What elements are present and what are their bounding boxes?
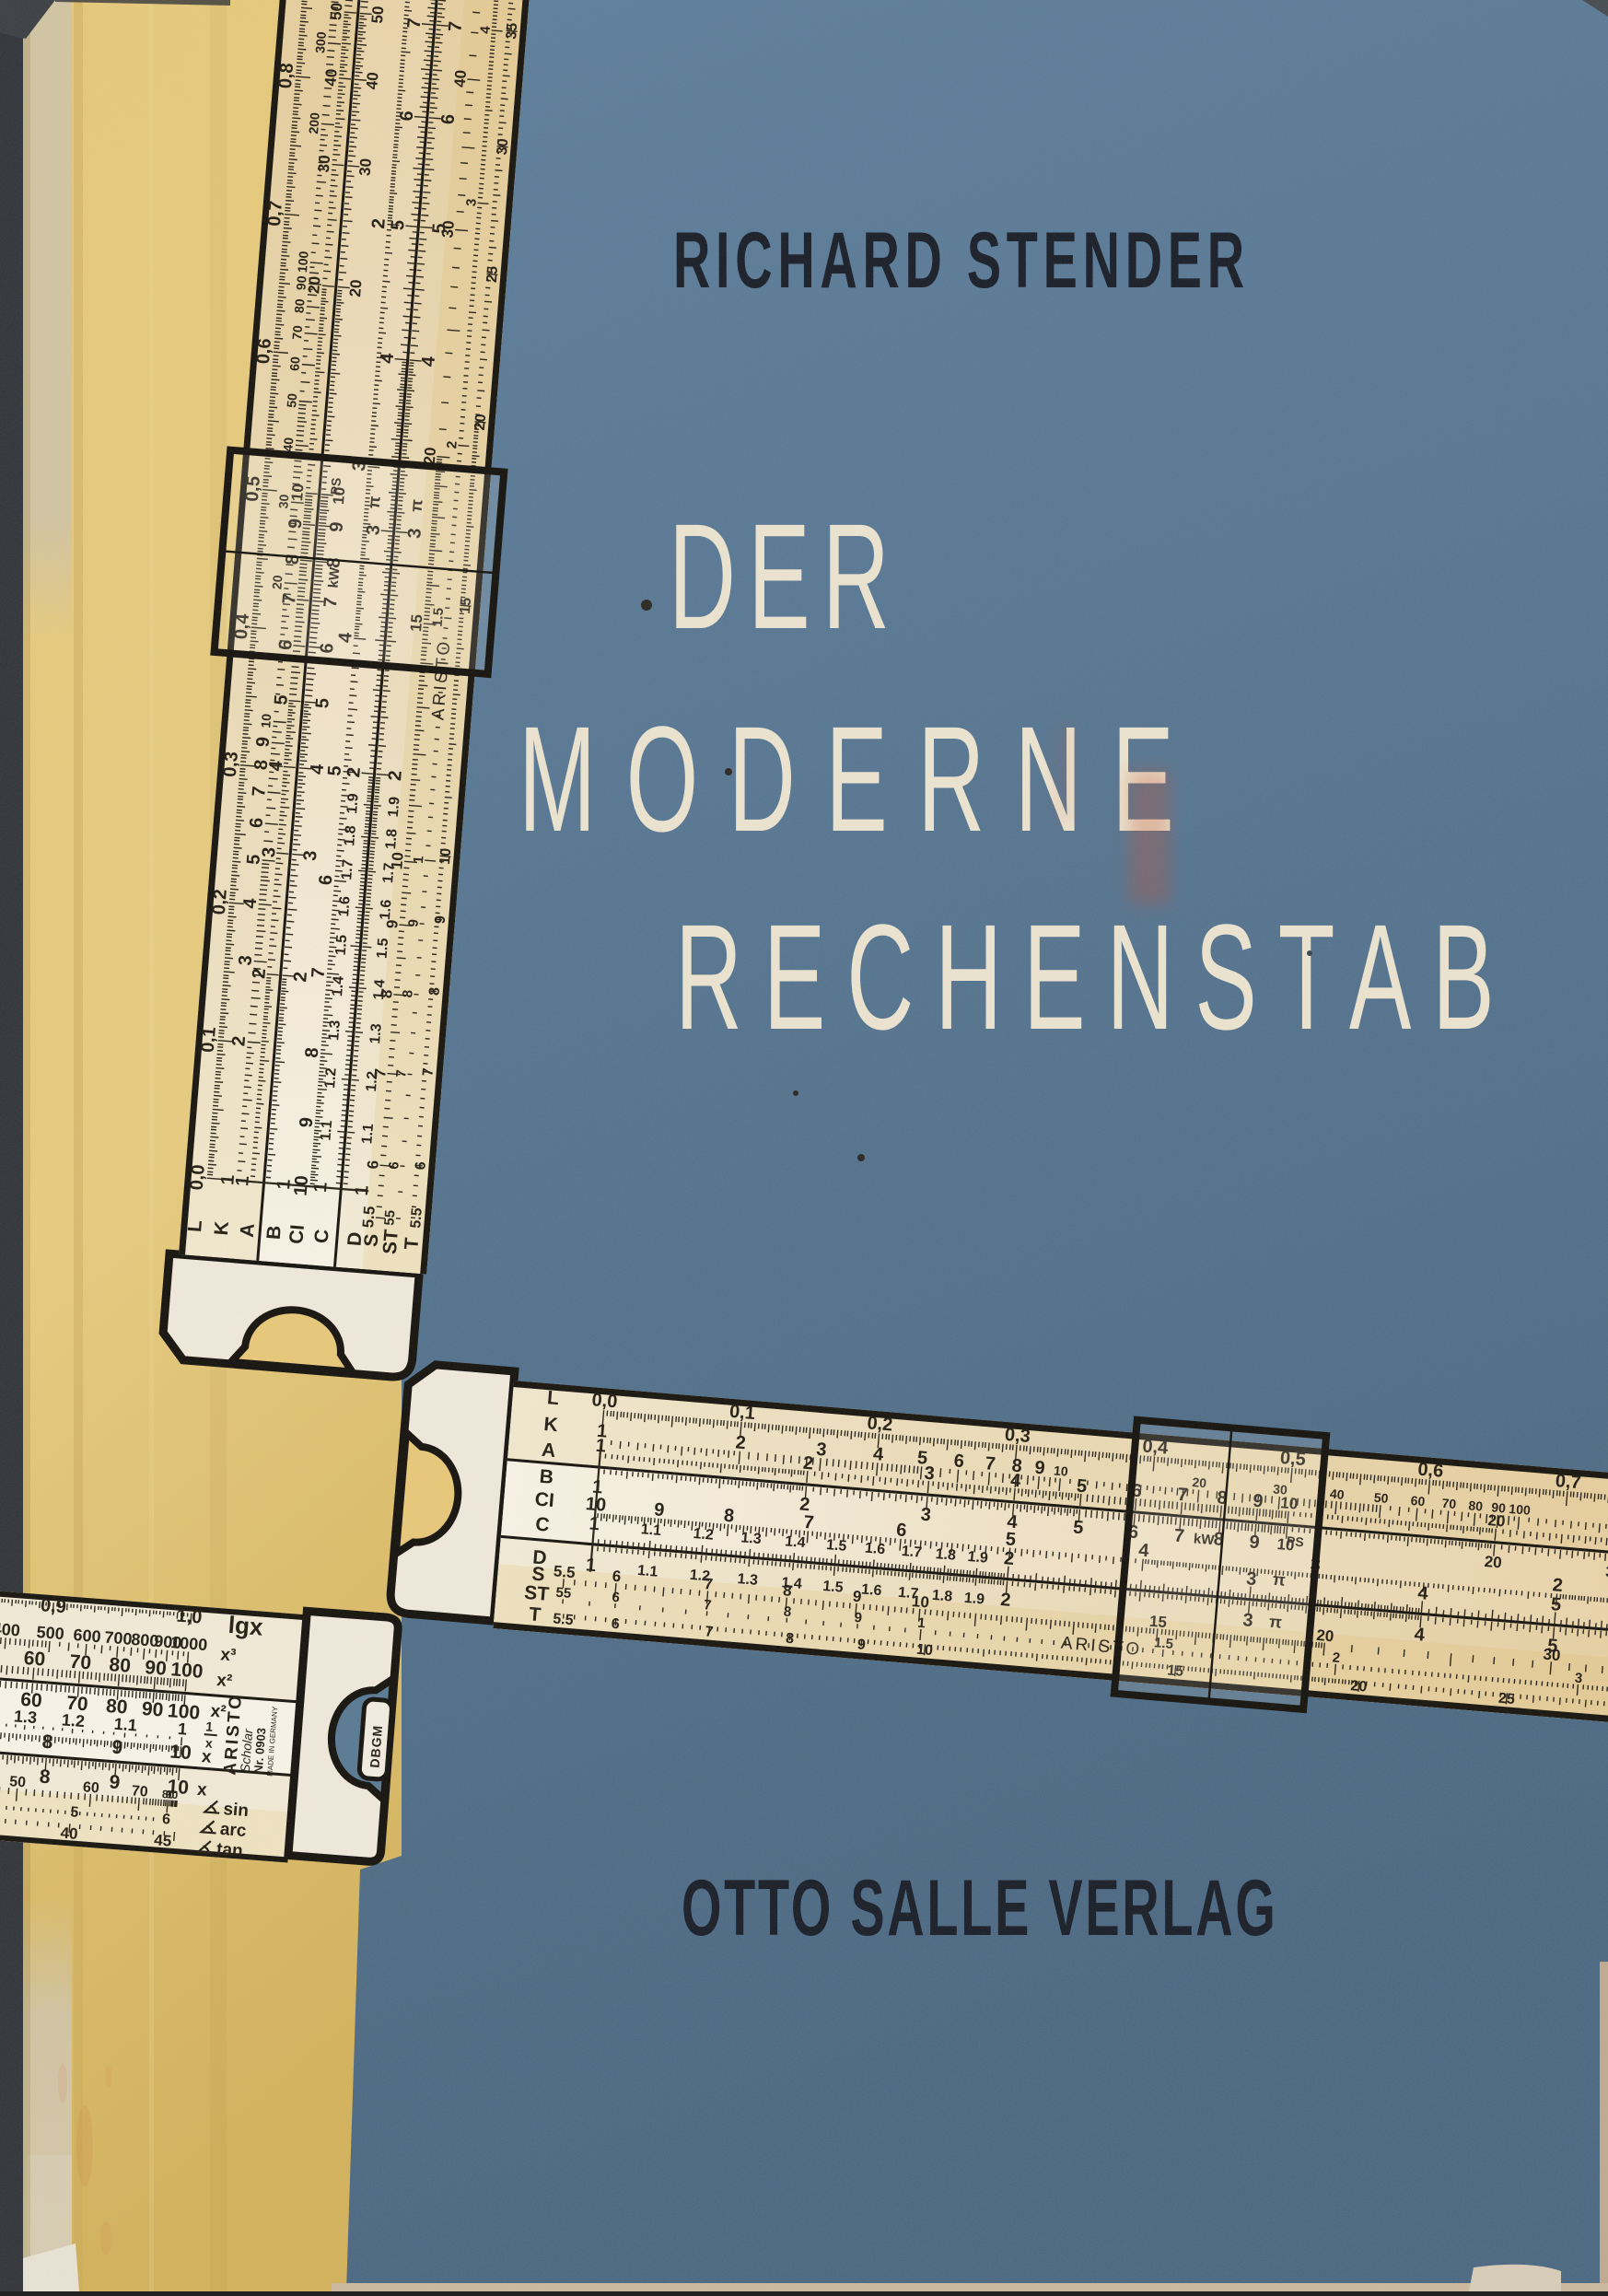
svg-text:x²: x² <box>216 1671 232 1691</box>
svg-text:60: 60 <box>286 355 302 371</box>
svg-text:0,6: 0,6 <box>1417 1460 1445 1482</box>
svg-text:8: 8 <box>783 1603 792 1620</box>
svg-text:1.9: 1.9 <box>963 1591 985 1608</box>
svg-text:T: T <box>401 1237 423 1251</box>
svg-text:CI: CI <box>534 1488 555 1511</box>
svg-text:7: 7 <box>371 1067 390 1078</box>
svg-text:6: 6 <box>437 113 459 125</box>
svg-text:7: 7 <box>309 967 330 979</box>
svg-text:2: 2 <box>802 1453 814 1474</box>
svg-text:0,7: 0,7 <box>264 200 286 227</box>
svg-text:25: 25 <box>484 265 501 283</box>
svg-text:DER: DER <box>669 492 890 660</box>
svg-text:RICHARD STENDER: RICHARD STENDER <box>673 216 1244 305</box>
svg-text:9: 9 <box>1034 1458 1046 1479</box>
svg-text:1.3: 1.3 <box>367 1023 385 1045</box>
svg-text:9: 9 <box>852 1588 862 1606</box>
svg-text:1.4: 1.4 <box>785 1533 807 1551</box>
svg-text:9: 9 <box>297 1116 318 1128</box>
svg-text:1.5: 1.5 <box>374 938 391 960</box>
svg-text:40: 40 <box>60 1824 78 1843</box>
svg-text:30: 30 <box>495 138 511 156</box>
svg-text:5: 5 <box>1550 1594 1562 1615</box>
svg-text:10: 10 <box>388 851 406 869</box>
svg-text:0,0: 0,0 <box>591 1390 619 1412</box>
svg-text:9: 9 <box>856 1637 866 1653</box>
svg-text:A: A <box>237 1222 259 1238</box>
svg-text:2: 2 <box>249 968 270 980</box>
svg-text:5: 5 <box>388 219 409 231</box>
svg-text:1.1: 1.1 <box>318 1120 335 1142</box>
svg-text:3: 3 <box>924 1463 936 1485</box>
svg-text:6: 6 <box>953 1451 965 1472</box>
svg-text:1.7: 1.7 <box>901 1544 923 1561</box>
svg-text:1.3: 1.3 <box>326 1020 344 1042</box>
svg-text:0,1: 0,1 <box>198 1026 220 1053</box>
svg-text:60: 60 <box>23 1648 46 1671</box>
svg-text:60: 60 <box>1410 1493 1426 1509</box>
svg-text:7: 7 <box>393 1069 410 1078</box>
svg-text:1.5: 1.5 <box>822 1579 845 1596</box>
svg-text:6: 6 <box>364 1160 382 1170</box>
svg-text:600: 600 <box>73 1626 101 1646</box>
svg-text:9: 9 <box>383 919 402 929</box>
svg-text:3: 3 <box>300 850 321 862</box>
svg-text:3: 3 <box>235 954 256 966</box>
svg-text:2: 2 <box>385 770 406 782</box>
svg-text:70: 70 <box>69 1651 92 1674</box>
svg-text:1,0: 1,0 <box>176 1606 203 1628</box>
svg-text:7: 7 <box>445 20 466 32</box>
svg-text:2: 2 <box>1003 1548 1015 1569</box>
svg-text:6: 6 <box>612 1568 622 1586</box>
svg-text:40: 40 <box>321 68 340 87</box>
svg-text:1.1: 1.1 <box>113 1715 137 1735</box>
svg-text:25: 25 <box>1497 1691 1515 1707</box>
svg-text:8: 8 <box>400 989 416 998</box>
svg-text:70: 70 <box>289 324 305 340</box>
svg-text:10: 10 <box>437 847 454 865</box>
svg-text:1.9: 1.9 <box>344 793 362 815</box>
svg-text:20: 20 <box>1350 1678 1368 1695</box>
svg-text:30: 30 <box>1605 1563 1608 1582</box>
svg-text:2: 2 <box>999 1590 1011 1611</box>
svg-text:1.6: 1.6 <box>864 1541 886 1558</box>
svg-text:0,2: 0,2 <box>209 889 231 915</box>
svg-text:70: 70 <box>1441 1496 1457 1511</box>
svg-text:RECHENSTAB: RECHENSTAB <box>675 892 1495 1061</box>
svg-text:ST: ST <box>379 1229 402 1255</box>
svg-text:55: 55 <box>555 1585 572 1602</box>
svg-text:80: 80 <box>1468 1498 1484 1513</box>
svg-text:K: K <box>211 1220 233 1236</box>
svg-text:6: 6 <box>161 1812 170 1828</box>
svg-text:35: 35 <box>504 22 520 40</box>
svg-text:30: 30 <box>1543 1646 1561 1665</box>
svg-text:1.8: 1.8 <box>383 828 401 850</box>
svg-text:1: 1 <box>917 1615 926 1632</box>
svg-text:5: 5 <box>70 1804 79 1821</box>
svg-text:1000: 1000 <box>170 1633 208 1654</box>
svg-text:6: 6 <box>413 1161 429 1171</box>
svg-text:6: 6 <box>611 1616 620 1633</box>
svg-text:L: L <box>184 1219 206 1233</box>
svg-text:5: 5 <box>1076 1476 1088 1498</box>
svg-text:20: 20 <box>1487 1511 1506 1531</box>
svg-text:1.3: 1.3 <box>740 1530 763 1547</box>
svg-text:5.5: 5.5 <box>553 1562 576 1581</box>
svg-text:1.7: 1.7 <box>339 859 356 881</box>
svg-text:2: 2 <box>228 1035 250 1047</box>
svg-text:OTTO SALLE VERLAG: OTTO SALLE VERLAG <box>682 1864 1276 1952</box>
svg-text:1.3: 1.3 <box>737 1571 759 1589</box>
svg-text:5: 5 <box>324 764 345 776</box>
svg-text:30: 30 <box>315 155 333 173</box>
svg-text:40: 40 <box>1329 1486 1345 1502</box>
svg-text:9: 9 <box>111 1737 123 1759</box>
svg-text:9: 9 <box>433 915 449 924</box>
svg-text:30: 30 <box>356 157 375 176</box>
svg-text:1.2: 1.2 <box>61 1710 85 1731</box>
svg-text:9: 9 <box>653 1499 665 1521</box>
svg-text:8: 8 <box>41 1731 54 1754</box>
svg-text:300: 300 <box>312 31 329 54</box>
svg-text:x: x <box>201 1747 213 1767</box>
svg-text:2: 2 <box>444 440 460 449</box>
svg-text:C: C <box>311 1229 333 1244</box>
svg-text:8: 8 <box>302 1046 323 1058</box>
svg-text:7: 7 <box>704 1575 714 1593</box>
svg-text:3: 3 <box>463 198 480 207</box>
svg-text:B: B <box>263 1225 285 1241</box>
svg-text:50: 50 <box>9 1774 27 1790</box>
svg-text:6: 6 <box>895 1520 907 1541</box>
svg-text:100: 100 <box>295 251 311 274</box>
svg-text:1.8: 1.8 <box>931 1588 953 1605</box>
svg-text:8: 8 <box>723 1506 735 1527</box>
svg-text:tan: tan <box>216 1840 243 1861</box>
svg-text:1.5: 1.5 <box>825 1537 847 1555</box>
svg-text:10: 10 <box>911 1592 929 1612</box>
svg-text:CI: CI <box>285 1224 309 1245</box>
svg-text:8: 8 <box>785 1631 794 1648</box>
svg-text:9: 9 <box>253 736 274 748</box>
svg-text:20: 20 <box>305 275 323 294</box>
svg-text:3: 3 <box>259 846 280 858</box>
svg-text:2: 2 <box>1332 1649 1341 1666</box>
svg-text:K: K <box>543 1414 559 1436</box>
svg-text:80: 80 <box>291 298 307 314</box>
svg-text:45: 45 <box>154 1831 172 1849</box>
svg-text:50: 50 <box>327 2 345 20</box>
svg-text:sin: sin <box>223 1800 250 1821</box>
svg-text:x: x <box>196 1780 208 1801</box>
svg-text:8: 8 <box>426 986 443 996</box>
svg-text:40: 40 <box>363 72 381 90</box>
svg-text:90: 90 <box>145 1657 168 1680</box>
svg-text:lgx: lgx <box>227 1611 264 1641</box>
svg-text:7: 7 <box>404 17 425 29</box>
svg-text:1.5: 1.5 <box>333 934 351 956</box>
svg-text:x³: x³ <box>220 1645 237 1665</box>
svg-text:700: 700 <box>104 1628 133 1649</box>
svg-text:50: 50 <box>368 6 387 24</box>
svg-text:0,0: 0,0 <box>187 1164 209 1191</box>
svg-text:0,8: 0,8 <box>275 63 297 89</box>
svg-text:30: 30 <box>438 220 457 239</box>
svg-text:5.5: 5.5 <box>359 1206 379 1229</box>
svg-text:9: 9 <box>854 1610 863 1626</box>
svg-text:90: 90 <box>141 1698 164 1721</box>
svg-text:0,6: 0,6 <box>253 338 275 365</box>
svg-text:20: 20 <box>1316 1626 1334 1646</box>
svg-text:6: 6 <box>397 110 418 122</box>
svg-text:0,7: 0,7 <box>1555 1471 1582 1493</box>
svg-text:1: 1 <box>177 1719 188 1739</box>
svg-text:10: 10 <box>915 1642 933 1659</box>
svg-text:2: 2 <box>735 1432 747 1453</box>
svg-text:7: 7 <box>703 1597 712 1614</box>
svg-text:C: C <box>534 1514 550 1536</box>
svg-text:1.4: 1.4 <box>330 975 347 997</box>
svg-text:20: 20 <box>346 279 365 297</box>
svg-text:0,2: 0,2 <box>867 1413 894 1435</box>
svg-text:50: 50 <box>1373 1490 1389 1506</box>
svg-text:ST: ST <box>523 1582 550 1605</box>
svg-text:arc: arc <box>219 1820 247 1841</box>
svg-text:70: 70 <box>131 1783 148 1800</box>
svg-text:5: 5 <box>1005 1529 1017 1550</box>
svg-text:3: 3 <box>815 1439 827 1461</box>
svg-text:1.8: 1.8 <box>342 825 359 847</box>
svg-text:5.5: 5.5 <box>553 1611 575 1628</box>
svg-text:40: 40 <box>280 437 296 452</box>
svg-text:90: 90 <box>165 1788 179 1801</box>
svg-text:5: 5 <box>271 694 292 706</box>
svg-text:1.9: 1.9 <box>967 1549 989 1567</box>
svg-text:1.8: 1.8 <box>935 1546 957 1564</box>
svg-text:1.1: 1.1 <box>359 1123 377 1145</box>
svg-text:7: 7 <box>249 786 270 798</box>
svg-text:100: 100 <box>170 1659 204 1683</box>
svg-text:20: 20 <box>472 414 489 431</box>
svg-text:55: 55 <box>381 1209 398 1226</box>
svg-text:8: 8 <box>782 1581 792 1600</box>
svg-text:1: 1 <box>205 1719 214 1734</box>
svg-text:5: 5 <box>312 697 333 709</box>
svg-text:1.6: 1.6 <box>378 899 395 921</box>
svg-text:2: 2 <box>344 766 365 778</box>
svg-text:9: 9 <box>109 1771 121 1793</box>
svg-text:1.1: 1.1 <box>636 1563 658 1580</box>
svg-text:0,9: 0,9 <box>40 1595 66 1617</box>
svg-text:500: 500 <box>36 1623 64 1643</box>
svg-text:20: 20 <box>1484 1553 1502 1572</box>
svg-text:1.2: 1.2 <box>322 1067 340 1090</box>
svg-text:7: 7 <box>985 1453 996 1474</box>
svg-text:5: 5 <box>1072 1517 1084 1538</box>
svg-text:6: 6 <box>246 817 267 829</box>
svg-text:10: 10 <box>258 713 274 728</box>
svg-text:5.5: 5.5 <box>408 1207 425 1230</box>
svg-text:10: 10 <box>169 1741 192 1764</box>
svg-text:9: 9 <box>405 918 422 927</box>
svg-text:100: 100 <box>1509 1501 1532 1518</box>
svg-text:6: 6 <box>316 874 337 886</box>
svg-text:2: 2 <box>1552 1575 1564 1596</box>
svg-text:6: 6 <box>612 1590 621 1606</box>
svg-text:1.2: 1.2 <box>693 1526 715 1544</box>
svg-text:0,3: 0,3 <box>1004 1425 1031 1447</box>
svg-text:0,1: 0,1 <box>728 1402 756 1424</box>
svg-text:7: 7 <box>420 1067 437 1077</box>
svg-text:B: B <box>539 1466 554 1488</box>
svg-text:40: 40 <box>451 69 470 87</box>
svg-text:7: 7 <box>705 1624 714 1640</box>
svg-text:400: 400 <box>0 1619 21 1639</box>
svg-text:200: 200 <box>306 111 322 134</box>
svg-text:3: 3 <box>1574 1671 1583 1687</box>
svg-text:A: A <box>541 1439 556 1462</box>
svg-text:8: 8 <box>39 1766 52 1789</box>
svg-text:2: 2 <box>368 217 390 229</box>
svg-text:7: 7 <box>803 1512 815 1533</box>
svg-text:1: 1 <box>411 856 427 865</box>
svg-text:1.3: 1.3 <box>13 1707 37 1727</box>
svg-text:50: 50 <box>284 392 299 408</box>
svg-text:6: 6 <box>386 1161 402 1171</box>
svg-text:L: L <box>546 1387 560 1409</box>
svg-text:3: 3 <box>920 1505 932 1526</box>
svg-text:80: 80 <box>109 1654 132 1677</box>
svg-text:0,3: 0,3 <box>220 751 242 777</box>
svg-text:1.9: 1.9 <box>386 796 403 818</box>
svg-text:8: 8 <box>378 989 396 999</box>
svg-text:T: T <box>528 1603 542 1626</box>
svg-text:1.6: 1.6 <box>336 895 354 917</box>
svg-text:60: 60 <box>82 1779 99 1796</box>
svg-text:1.1: 1.1 <box>640 1521 662 1539</box>
svg-text:1.6: 1.6 <box>861 1581 883 1599</box>
svg-text:10: 10 <box>1053 1463 1068 1478</box>
